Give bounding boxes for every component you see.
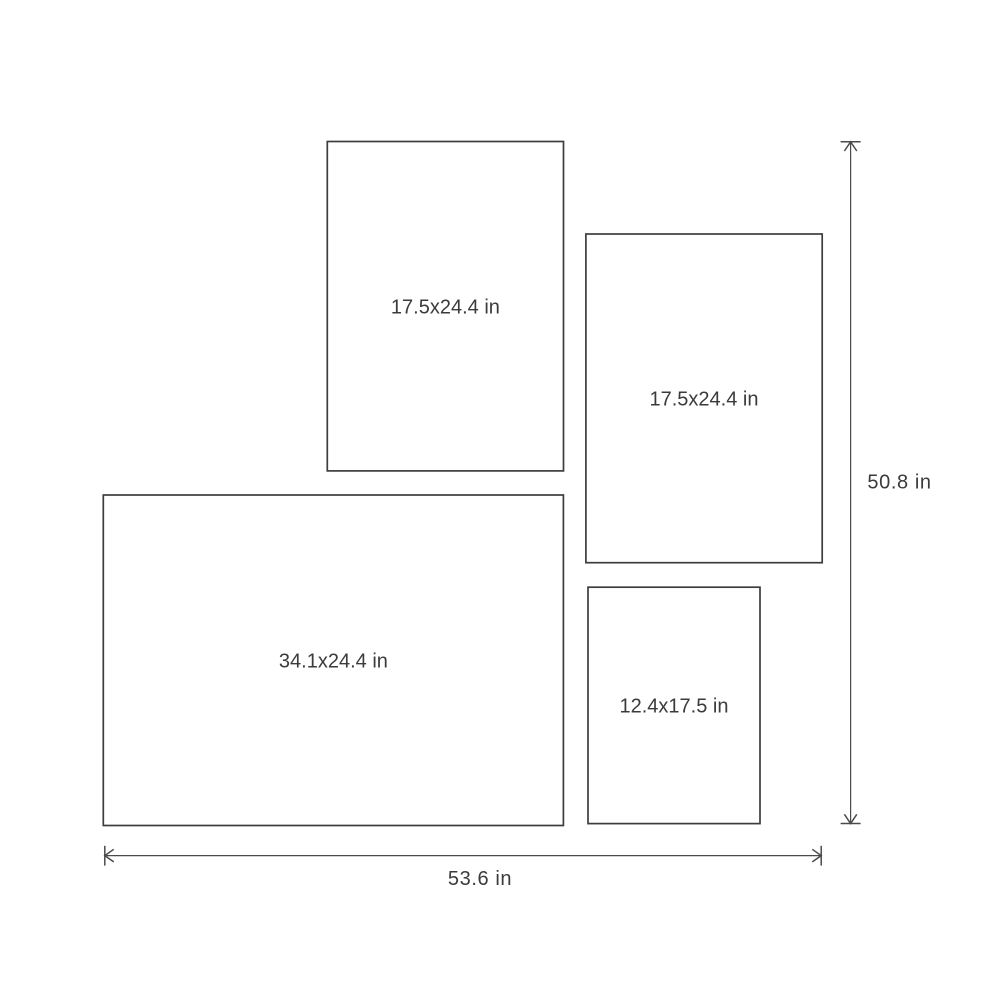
- svg-text:12.4x17.5 in: 12.4x17.5 in: [620, 696, 729, 718]
- svg-text:53.6 in: 53.6 in: [448, 868, 512, 890]
- svg-text:50.8 in: 50.8 in: [867, 471, 931, 493]
- svg-text:17.5x24.4 in: 17.5x24.4 in: [650, 389, 759, 411]
- svg-text:34.1x24.4 in: 34.1x24.4 in: [279, 651, 388, 673]
- svg-text:17.5x24.4 in: 17.5x24.4 in: [391, 297, 500, 319]
